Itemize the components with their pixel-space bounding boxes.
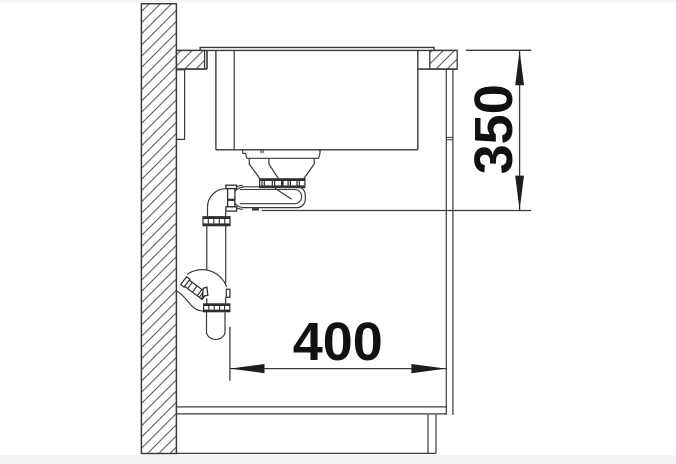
svg-text:400: 400 [293, 312, 383, 372]
svg-text:350: 350 [464, 84, 524, 174]
